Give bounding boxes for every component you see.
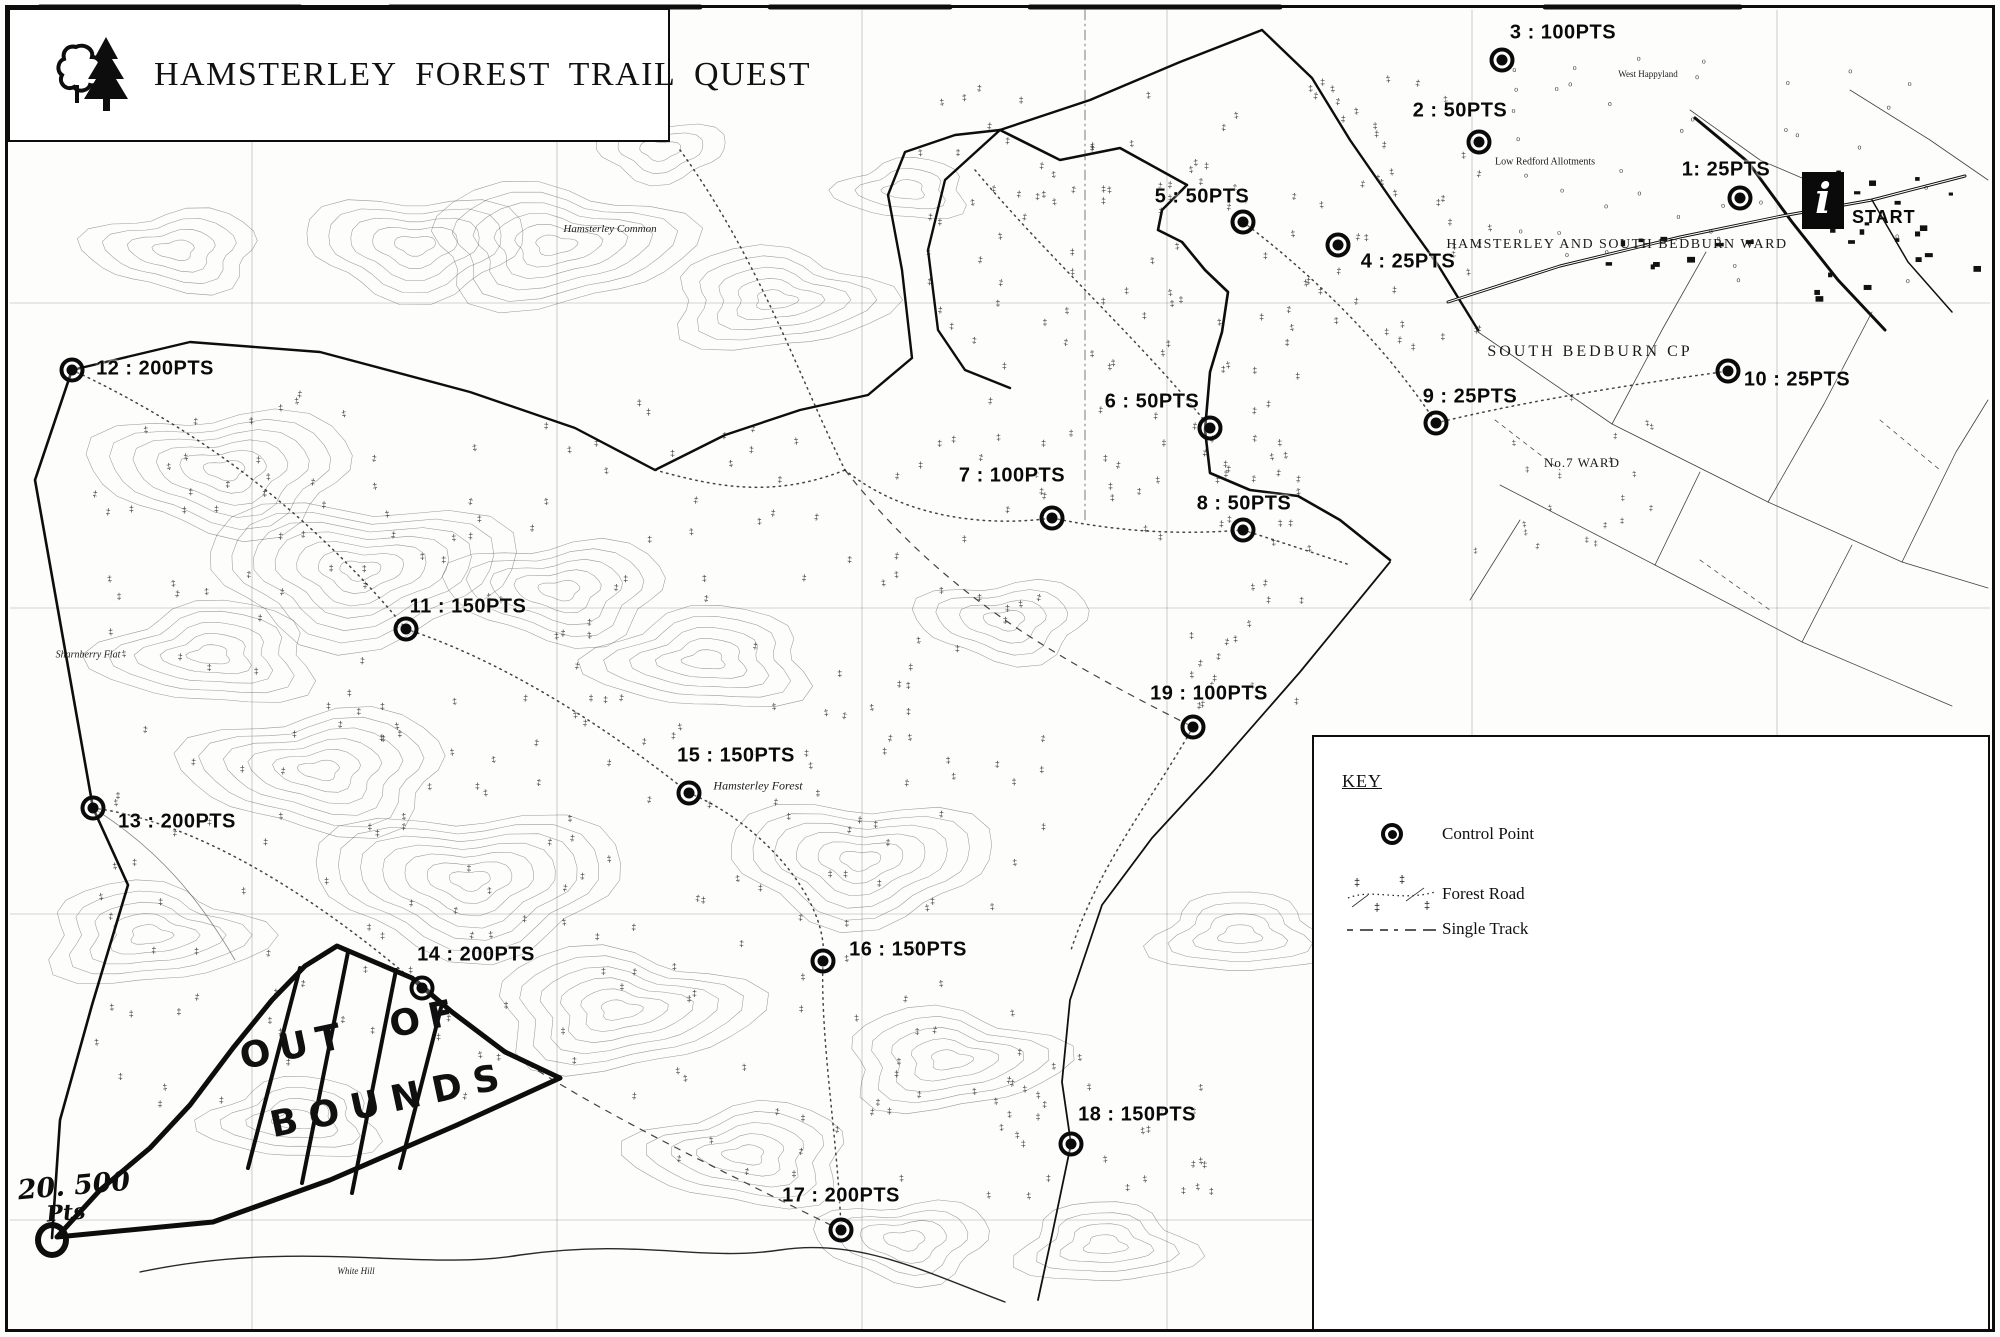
svg-text:‡: ‡	[1063, 337, 1069, 348]
svg-text:‡: ‡	[1064, 305, 1070, 315]
svg-text:‡: ‡	[1129, 138, 1135, 148]
svg-text:‡: ‡	[1142, 1174, 1148, 1185]
svg-text:‡: ‡	[1275, 468, 1281, 479]
svg-text:‡: ‡	[1295, 486, 1301, 497]
svg-text:‡: ‡	[893, 551, 900, 562]
svg-text:‡: ‡	[1277, 438, 1283, 448]
svg-text:‡: ‡	[987, 396, 993, 407]
svg-text:‡: ‡	[1070, 247, 1075, 257]
map-label: SOUTH BEDBURN CP	[1487, 343, 1692, 361]
svg-text:‡: ‡	[939, 97, 945, 107]
svg-text:‡: ‡	[408, 965, 414, 975]
svg-text:‡: ‡	[1299, 595, 1305, 605]
svg-text:‡: ‡	[1221, 122, 1227, 132]
svg-text:‡: ‡	[1233, 110, 1240, 121]
svg-text:‡: ‡	[1288, 518, 1294, 528]
svg-text:‡: ‡	[896, 1056, 901, 1066]
svg-text:‡: ‡	[487, 885, 493, 895]
svg-text:‡: ‡	[1312, 91, 1319, 102]
svg-text:‡: ‡	[300, 978, 306, 989]
control-point-marker	[81, 796, 106, 821]
svg-text:‡: ‡	[1224, 637, 1230, 648]
svg-text:o: o	[1702, 58, 1706, 65]
svg-text:‡: ‡	[917, 147, 923, 157]
control-label: 15 : 150PTS	[677, 745, 795, 768]
svg-text:‡: ‡	[177, 652, 183, 662]
svg-text:‡: ‡	[204, 586, 210, 596]
svg-text:‡: ‡	[1002, 361, 1007, 371]
svg-text:‡: ‡	[1039, 765, 1044, 775]
svg-text:‡: ‡	[170, 578, 176, 589]
svg-text:‡: ‡	[1319, 200, 1325, 210]
svg-text:‡: ‡	[986, 1190, 992, 1201]
svg-text:‡: ‡	[854, 1013, 860, 1024]
svg-text:‡: ‡	[547, 837, 553, 848]
svg-text:‡: ‡	[451, 533, 457, 543]
svg-text:‡: ‡	[1039, 160, 1045, 171]
svg-text:‡: ‡	[1535, 541, 1541, 551]
svg-text:‡: ‡	[151, 945, 157, 955]
svg-text:‡: ‡	[1108, 481, 1113, 491]
svg-text:‡: ‡	[846, 824, 853, 835]
svg-text:‡: ‡	[677, 721, 684, 732]
svg-text:‡: ‡	[488, 930, 494, 940]
svg-text:‡: ‡	[574, 661, 580, 672]
svg-text:‡: ‡	[670, 448, 675, 458]
control-dot	[1205, 423, 1216, 434]
svg-text:‡: ‡	[390, 530, 397, 541]
svg-text:‡: ‡	[118, 1071, 123, 1081]
svg-text:‡: ‡	[1364, 232, 1370, 242]
control-label: 10 : 25PTS	[1744, 369, 1850, 392]
svg-text:‡: ‡	[561, 917, 568, 928]
svg-text:‡: ‡	[1021, 1139, 1026, 1149]
svg-text:‡: ‡	[887, 733, 894, 744]
svg-text:‡: ‡	[1136, 486, 1142, 496]
svg-text:‡: ‡	[182, 505, 187, 515]
svg-text:‡: ‡	[885, 837, 890, 847]
svg-text:‡: ‡	[1035, 1090, 1041, 1100]
svg-text:‡: ‡	[482, 787, 488, 798]
svg-text:‡: ‡	[1373, 121, 1378, 131]
svg-text:‡: ‡	[129, 504, 134, 514]
svg-text:‡: ‡	[1011, 777, 1016, 787]
svg-text:‡: ‡	[672, 961, 677, 971]
svg-text:‡: ‡	[749, 445, 755, 455]
svg-text:‡: ‡	[380, 931, 385, 941]
control-point-marker	[1424, 411, 1449, 436]
svg-text:‡: ‡	[469, 930, 476, 941]
svg-text:‡: ‡	[951, 771, 957, 781]
svg-text:‡: ‡	[844, 918, 849, 928]
map-label: HAMSTERLEY AND SOUTH BEDBURN WARD	[1446, 237, 1787, 253]
control-dot	[401, 624, 412, 635]
svg-text:‡: ‡	[142, 724, 148, 734]
svg-text:‡: ‡	[1262, 578, 1268, 589]
svg-text:‡: ‡	[588, 693, 593, 703]
svg-text:‡: ‡	[1004, 504, 1010, 515]
svg-text:o: o	[1906, 278, 1910, 285]
svg-text:‡: ‡	[1613, 432, 1618, 441]
svg-text:‡: ‡	[1335, 96, 1341, 107]
svg-text:o: o	[1733, 263, 1737, 270]
svg-text:‡: ‡	[646, 407, 651, 417]
svg-text:‡: ‡	[977, 254, 984, 265]
svg-text:‡: ‡	[1289, 322, 1295, 333]
svg-text:‡: ‡	[1593, 539, 1598, 548]
svg-text:‡: ‡	[1070, 184, 1077, 195]
control-point-marker	[1040, 506, 1065, 531]
svg-text:‡: ‡	[569, 833, 575, 844]
svg-text:‡: ‡	[631, 1091, 637, 1101]
svg-text:‡: ‡	[837, 668, 842, 678]
svg-text:‡: ‡	[1068, 428, 1073, 438]
control-dot	[67, 365, 78, 376]
svg-text:‡: ‡	[1388, 167, 1394, 178]
svg-text:‡: ‡	[1252, 433, 1258, 444]
svg-text:‡: ‡	[1197, 658, 1204, 669]
svg-text:‡: ‡	[1305, 276, 1311, 286]
single-track-icon	[1342, 921, 1442, 937]
start-info-box: i	[1802, 172, 1844, 229]
svg-text:‡: ‡	[646, 794, 653, 805]
svg-text:‡: ‡	[1295, 474, 1301, 485]
svg-text:‡: ‡	[937, 305, 943, 315]
svg-text:‡: ‡	[1089, 349, 1095, 359]
svg-text:‡: ‡	[882, 746, 887, 756]
trail-quest-map-page: ‡‡‡‡‡‡‡‡‡‡‡‡‡‡‡‡‡‡‡‡‡‡‡‡‡‡‡‡‡‡‡‡‡‡‡‡‡‡‡‡…	[0, 0, 2000, 1337]
svg-text:‡: ‡	[721, 430, 728, 441]
svg-text:‡: ‡	[894, 1069, 899, 1079]
svg-text:‡: ‡	[693, 495, 699, 506]
key-box: KEY Control Point‡‡‡‡Forest RoadSingle T…	[1312, 735, 1990, 1332]
svg-text:‡: ‡	[894, 471, 900, 482]
forest-logo-icon	[54, 33, 128, 118]
svg-text:‡: ‡	[1003, 615, 1008, 625]
svg-text:‡: ‡	[362, 564, 367, 574]
svg-text:‡: ‡	[1198, 1156, 1204, 1166]
svg-text:o: o	[1514, 87, 1518, 94]
svg-text:o: o	[1721, 202, 1726, 209]
svg-text:‡: ‡	[257, 613, 263, 623]
svg-text:‡: ‡	[938, 809, 944, 820]
svg-text:‡: ‡	[1051, 1061, 1057, 1071]
svg-text:‡: ‡	[449, 747, 455, 757]
svg-text:‡: ‡	[880, 578, 887, 589]
svg-text:o: o	[1572, 65, 1577, 73]
control-label: 1: 25PTS	[1682, 159, 1770, 182]
svg-text:‡: ‡	[1320, 77, 1325, 87]
control-label: 8 : 50PTS	[1197, 493, 1292, 516]
svg-text:‡: ‡	[1014, 1130, 1020, 1140]
svg-text:‡: ‡	[676, 1153, 682, 1163]
svg-text:‡: ‡	[1232, 634, 1238, 645]
svg-text:‡: ‡	[707, 799, 713, 810]
svg-text:‡: ‡	[1277, 518, 1283, 528]
svg-text:‡: ‡	[544, 421, 549, 431]
map-label: Sharnberry Flat	[56, 650, 121, 661]
svg-text:‡: ‡	[157, 1099, 162, 1109]
svg-text:‡: ‡	[1603, 521, 1608, 530]
key-item: Single Track	[1342, 919, 1528, 939]
svg-text:‡: ‡	[1632, 469, 1637, 478]
svg-text:‡: ‡	[1333, 315, 1338, 325]
svg-text:‡: ‡	[847, 554, 853, 564]
svg-text:‡: ‡	[1440, 332, 1445, 342]
svg-text:‡: ‡	[1188, 164, 1194, 174]
control-dot	[1188, 722, 1199, 733]
svg-text:‡: ‡	[603, 694, 608, 704]
svg-text:‡: ‡	[441, 555, 446, 565]
svg-text:‡: ‡	[995, 298, 1000, 308]
svg-text:‡: ‡	[800, 1113, 805, 1123]
svg-text:‡: ‡	[504, 1000, 509, 1010]
svg-text:‡: ‡	[637, 398, 642, 408]
control-point-marker	[1728, 186, 1753, 211]
svg-text:o: o	[1680, 128, 1684, 135]
svg-text:‡: ‡	[801, 573, 807, 583]
control-point-marker	[1467, 130, 1492, 155]
svg-text:‡: ‡	[893, 569, 899, 580]
svg-text:‡: ‡	[969, 197, 976, 208]
control-label: 3 : 100PTS	[1510, 22, 1616, 45]
control-label: 2 : 50PTS	[1413, 100, 1508, 123]
control-dot	[1431, 418, 1442, 429]
svg-text:‡: ‡	[1041, 491, 1048, 502]
svg-text:‡: ‡	[329, 563, 334, 573]
svg-text:‡: ‡	[939, 585, 945, 595]
svg-text:‡: ‡	[1525, 465, 1530, 474]
svg-text:‡: ‡	[998, 1122, 1004, 1133]
svg-text:‡: ‡	[1005, 603, 1010, 613]
control-point-marker	[1059, 1132, 1084, 1157]
svg-text:‡: ‡	[477, 1049, 483, 1060]
svg-text:‡: ‡	[945, 755, 951, 765]
svg-text:o: o	[1857, 144, 1862, 151]
svg-text:‡: ‡	[362, 580, 367, 590]
svg-text:‡: ‡	[214, 504, 220, 514]
svg-text:‡: ‡	[949, 321, 955, 331]
svg-text:‡: ‡	[750, 423, 756, 434]
svg-text:‡: ‡	[1006, 1109, 1012, 1120]
svg-text:‡: ‡	[372, 481, 378, 492]
svg-text:‡: ‡	[1286, 304, 1292, 315]
svg-text:‡: ‡	[1415, 78, 1421, 89]
svg-text:‡: ‡	[1381, 140, 1387, 150]
svg-text:‡: ‡	[774, 1106, 781, 1117]
svg-text:‡: ‡	[129, 1009, 134, 1019]
svg-text:‡: ‡	[1308, 83, 1314, 93]
svg-text:‡: ‡	[262, 488, 267, 498]
svg-text:‡: ‡	[932, 1025, 939, 1036]
svg-text:‡: ‡	[601, 966, 606, 976]
map-label: Low Redford Allotments	[1495, 157, 1595, 168]
svg-text:‡: ‡	[401, 821, 407, 832]
svg-text:‡: ‡	[1447, 217, 1452, 227]
svg-text:‡: ‡	[1620, 516, 1624, 525]
svg-text:‡: ‡	[1160, 348, 1166, 358]
svg-text:o: o	[1554, 86, 1559, 93]
svg-text:‡: ‡	[207, 663, 212, 673]
svg-text:‡: ‡	[905, 680, 911, 690]
map-label: No.7 WARD	[1544, 455, 1620, 471]
svg-text:‡: ‡	[937, 217, 942, 227]
svg-text:‡: ‡	[613, 582, 619, 592]
svg-text:‡: ‡	[1012, 857, 1018, 868]
svg-text:‡: ‡	[1385, 74, 1391, 85]
svg-text:‡: ‡	[915, 635, 922, 646]
map-label: Hamsterley Common	[563, 223, 656, 235]
svg-text:‡: ‡	[815, 788, 820, 798]
svg-text:‡: ‡	[475, 781, 480, 791]
svg-text:‡: ‡	[1424, 900, 1430, 912]
svg-text:‡: ‡	[360, 656, 366, 666]
svg-text:‡: ‡	[1251, 473, 1257, 483]
svg-text:‡: ‡	[468, 531, 474, 541]
svg-text:‡: ‡	[1124, 286, 1130, 296]
svg-text:o: o	[1637, 56, 1641, 63]
svg-text:‡: ‡	[1041, 438, 1047, 448]
svg-text:‡: ‡	[692, 988, 697, 998]
svg-text:‡: ‡	[420, 551, 426, 561]
svg-text:‡: ‡	[452, 696, 458, 707]
svg-text:‡: ‡	[254, 666, 259, 676]
svg-text:‡: ‡	[379, 733, 385, 743]
svg-text:‡: ‡	[951, 434, 957, 444]
svg-text:‡: ‡	[1190, 1159, 1196, 1169]
svg-text:‡: ‡	[792, 1169, 797, 1179]
svg-text:‡: ‡	[675, 1066, 681, 1076]
control-point-marker	[1198, 416, 1223, 441]
svg-text:‡: ‡	[1189, 630, 1194, 640]
svg-text:‡: ‡	[961, 92, 967, 102]
svg-text:‡: ‡	[1219, 519, 1225, 529]
control-label: 19 : 100PTS	[1150, 683, 1268, 706]
control-dot	[1333, 240, 1344, 251]
svg-text:‡: ‡	[813, 512, 820, 523]
control-label: 5 : 50PTS	[1155, 186, 1250, 209]
svg-text:‡: ‡	[367, 822, 372, 832]
svg-text:‡: ‡	[1271, 537, 1277, 547]
key-item-label: Forest Road	[1442, 884, 1525, 904]
svg-text:‡: ‡	[834, 1124, 840, 1135]
control-point-marker	[410, 976, 435, 1001]
control-point-icon	[1342, 823, 1442, 845]
svg-text:‡: ‡	[183, 452, 189, 463]
svg-text:‡: ‡	[641, 736, 647, 747]
control-label: 16 : 150PTS	[849, 939, 967, 962]
svg-text:o: o	[1637, 190, 1642, 198]
svg-text:‡: ‡	[1285, 337, 1290, 347]
svg-text:‡: ‡	[543, 496, 549, 507]
svg-text:‡: ‡	[1021, 212, 1028, 223]
svg-text:‡: ‡	[1329, 84, 1336, 95]
svg-text:‡: ‡	[1226, 464, 1232, 475]
control-dot	[417, 983, 428, 994]
svg-text:‡: ‡	[1265, 399, 1271, 410]
control-point-icon	[1381, 823, 1403, 845]
svg-text:‡: ‡	[292, 729, 297, 739]
svg-text:‡: ‡	[1354, 877, 1360, 889]
svg-text:o: o	[1557, 230, 1562, 238]
svg-text:‡: ‡	[117, 591, 122, 601]
svg-text:o: o	[1608, 101, 1612, 108]
svg-text:‡: ‡	[906, 706, 911, 716]
svg-text:‡: ‡	[741, 1062, 747, 1072]
svg-text:‡: ‡	[560, 1026, 565, 1036]
svg-text:‡: ‡	[956, 148, 961, 158]
svg-text:‡: ‡	[1143, 524, 1149, 534]
svg-text:‡: ‡	[997, 231, 1003, 242]
control-point-marker	[60, 358, 85, 383]
svg-text:‡: ‡	[804, 748, 810, 758]
control-label: 9 : 25PTS	[1423, 386, 1518, 409]
svg-text:‡: ‡	[158, 897, 163, 907]
svg-text:‡: ‡	[989, 901, 995, 911]
svg-text:o: o	[1676, 214, 1680, 221]
svg-text:‡: ‡	[324, 876, 329, 886]
svg-text:‡: ‡	[594, 438, 600, 448]
svg-text:‡: ‡	[265, 948, 271, 959]
svg-text:‡: ‡	[1204, 161, 1209, 171]
svg-text:‡: ‡	[938, 978, 944, 988]
svg-text:‡: ‡	[1022, 1084, 1028, 1094]
svg-text:‡: ‡	[347, 688, 353, 698]
control-label: 12 : 200PTS	[96, 358, 214, 381]
svg-text:‡: ‡	[728, 458, 734, 469]
svg-text:‡: ‡	[1252, 365, 1257, 375]
svg-text:‡: ‡	[108, 911, 114, 921]
control-dot	[1238, 525, 1249, 536]
svg-text:‡: ‡	[771, 701, 777, 711]
key-item-label: Single Track	[1442, 919, 1528, 939]
svg-text:‡: ‡	[869, 702, 875, 713]
svg-text:‡: ‡	[703, 593, 709, 604]
svg-text:‡: ‡	[341, 408, 348, 419]
svg-text:‡: ‡	[522, 693, 528, 704]
svg-text:‡: ‡	[1009, 1008, 1016, 1019]
svg-text:‡: ‡	[925, 247, 931, 257]
svg-text:‡: ‡	[702, 573, 708, 583]
svg-text:‡: ‡	[93, 1037, 99, 1048]
svg-text:‡: ‡	[744, 1166, 750, 1177]
svg-text:‡: ‡	[1259, 312, 1265, 322]
svg-text:‡: ‡	[1523, 528, 1529, 538]
svg-text:‡: ‡	[1161, 438, 1166, 448]
svg-text:o: o	[1512, 67, 1517, 75]
svg-text:‡: ‡	[1051, 196, 1057, 207]
svg-text:‡: ‡	[1145, 90, 1151, 101]
svg-text:‡: ‡	[902, 994, 908, 1005]
svg-text:‡: ‡	[176, 1007, 181, 1017]
control-point-marker	[829, 1218, 854, 1243]
svg-text:‡: ‡	[1399, 874, 1405, 886]
svg-text:‡: ‡	[1209, 1186, 1214, 1196]
control-label: 18 : 150PTS	[1078, 1104, 1196, 1127]
svg-text:‡: ‡	[188, 487, 193, 497]
svg-text:‡: ‡	[566, 444, 572, 455]
svg-text:‡: ‡	[267, 1015, 272, 1025]
control-point-marker	[1490, 48, 1515, 73]
svg-text:‡: ‡	[896, 679, 902, 689]
svg-text:‡: ‡	[263, 837, 269, 847]
control-dot	[1066, 1139, 1077, 1150]
svg-text:o: o	[1848, 68, 1852, 75]
control-dot	[1497, 55, 1508, 66]
svg-text:‡: ‡	[877, 878, 883, 888]
svg-text:‡: ‡	[930, 896, 935, 906]
svg-text:‡: ‡	[1246, 618, 1252, 629]
